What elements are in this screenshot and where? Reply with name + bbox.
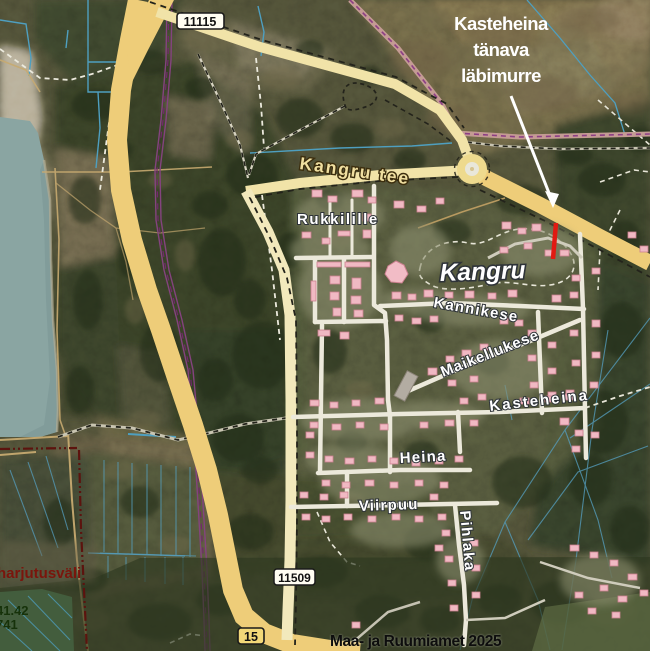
svg-text:11115: 11115 <box>184 15 217 29</box>
svg-text:Kasteheina: Kasteheina <box>454 13 549 34</box>
svg-text:Maa- ja Ruumiamet 2025: Maa- ja Ruumiamet 2025 <box>330 633 502 650</box>
svg-text:15: 15 <box>244 630 258 644</box>
svg-text:Rukkilille: Rukkilille <box>297 211 379 228</box>
svg-text:741: 741 <box>0 617 18 632</box>
svg-text:läbimurre: läbimurre <box>461 65 541 86</box>
svg-text:Kangru: Kangru <box>439 257 526 287</box>
svg-text:41.42: 41.42 <box>0 603 29 618</box>
svg-text:Heina: Heina <box>399 448 447 467</box>
svg-text:11509: 11509 <box>278 571 311 585</box>
svg-text:harjutusväli: harjutusväli <box>0 565 81 582</box>
svg-text:tänava: tänava <box>473 39 530 60</box>
svg-text:Viirpuu: Viirpuu <box>359 496 419 515</box>
